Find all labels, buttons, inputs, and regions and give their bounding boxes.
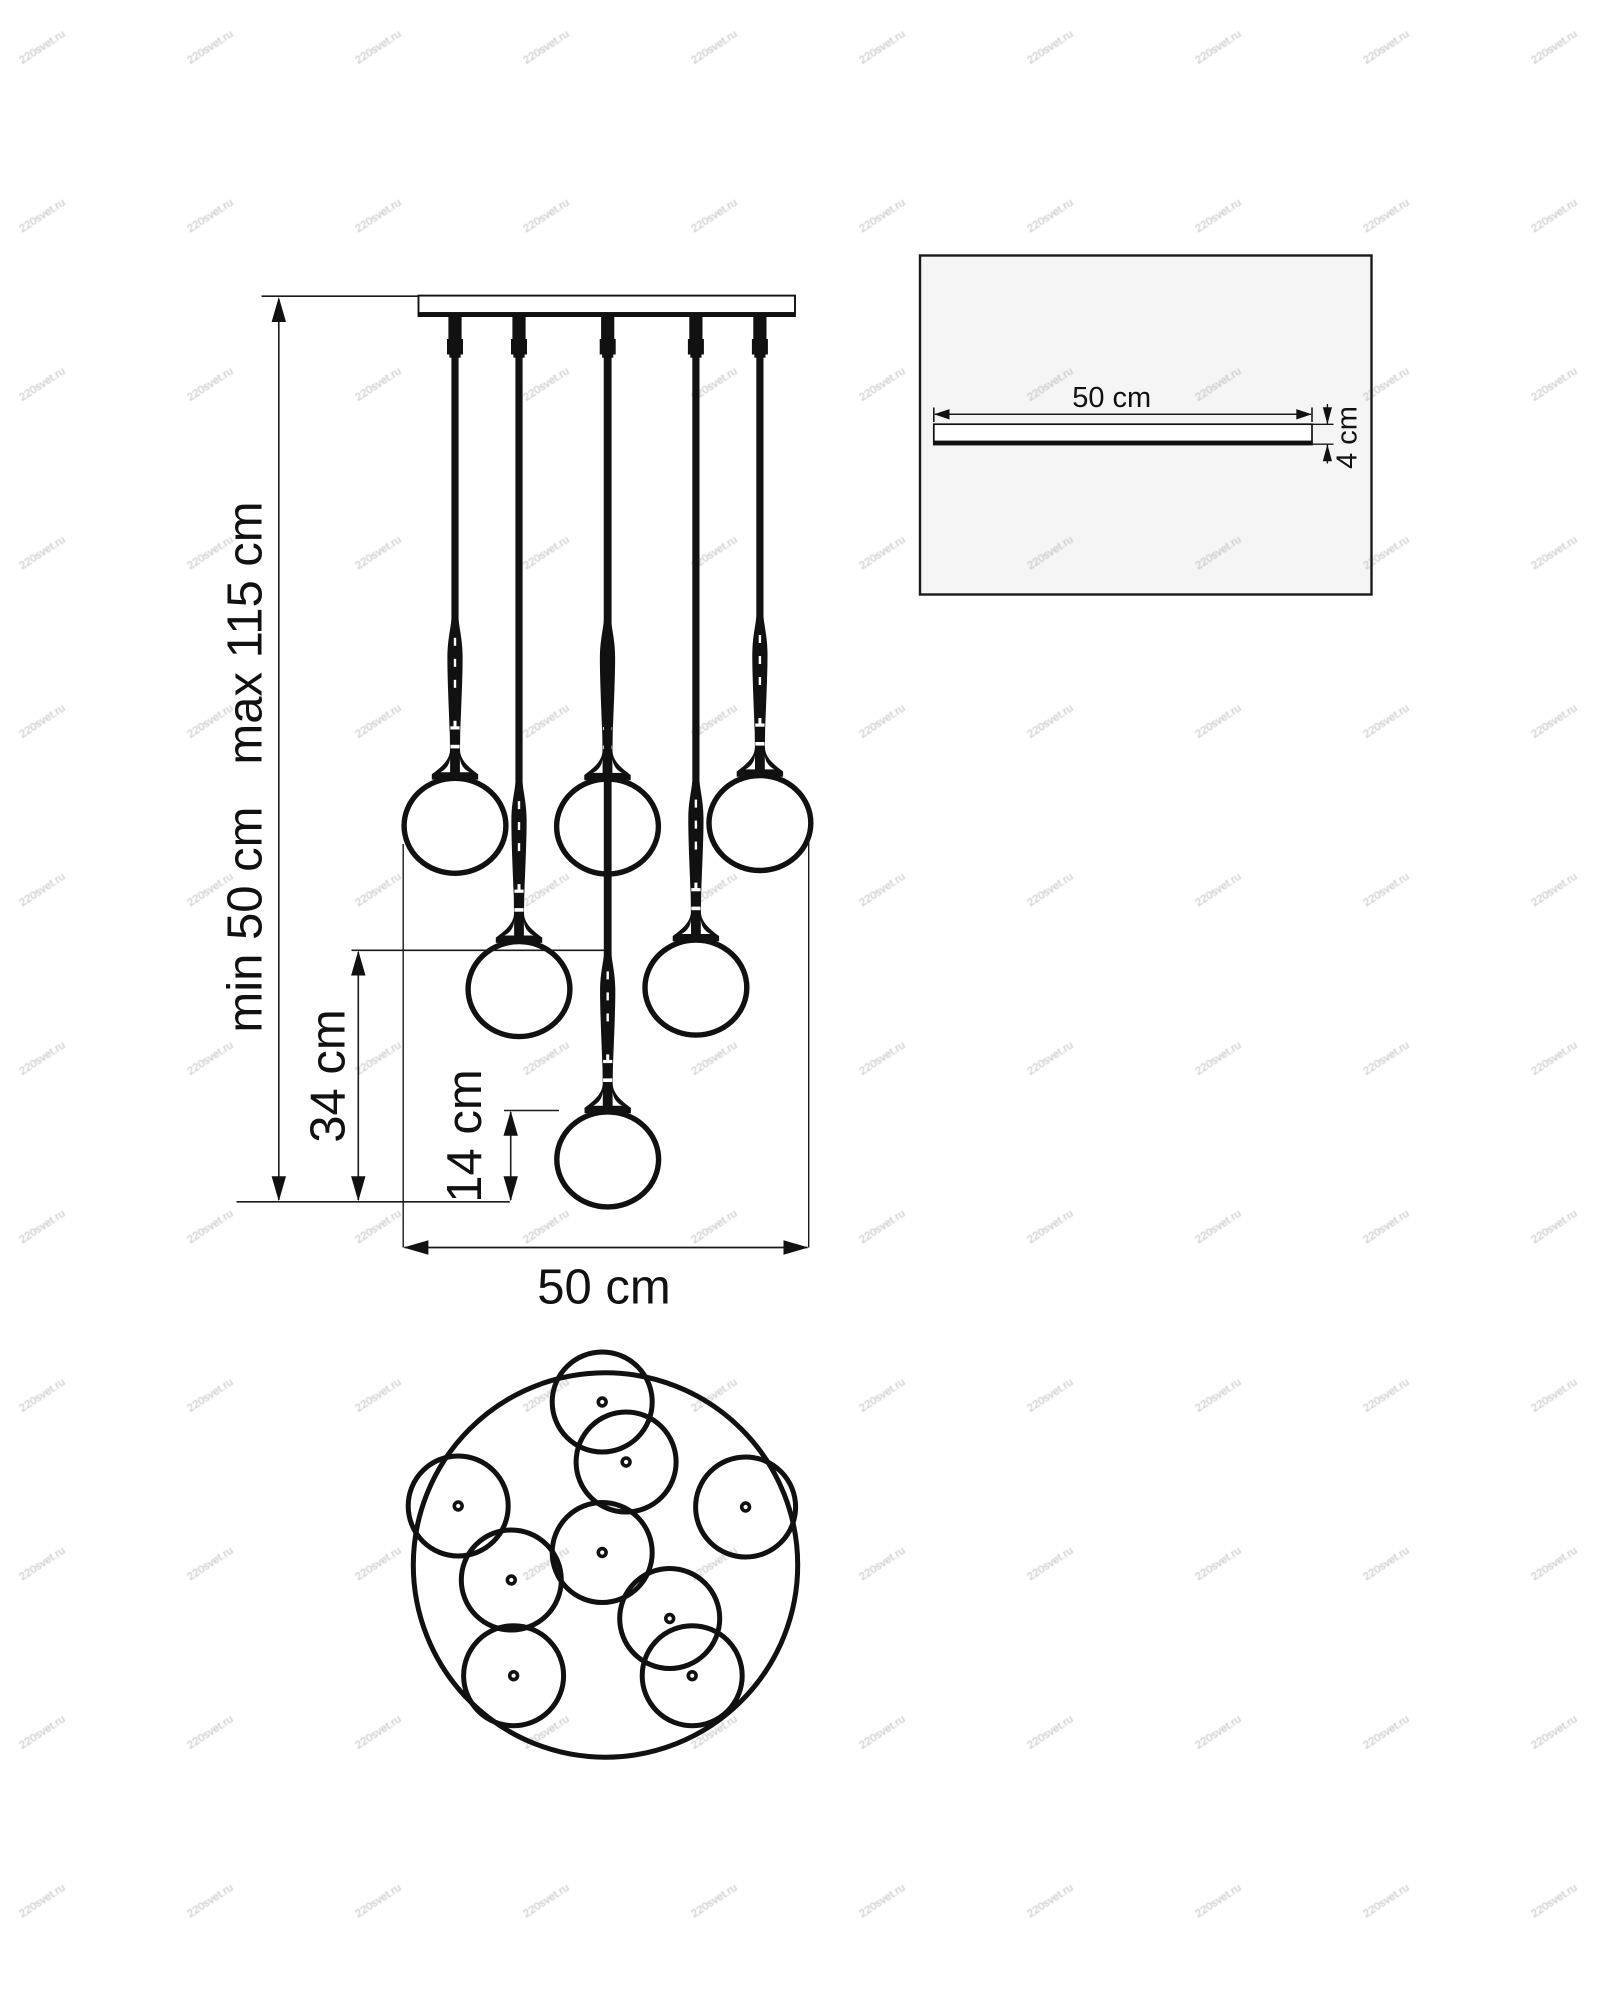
svg-text:34 cm: 34 cm xyxy=(302,1009,356,1142)
svg-text:14 cm: 14 cm xyxy=(438,1069,492,1202)
svg-text:50 cm: 50 cm xyxy=(1072,382,1151,414)
svg-text:min 50 cm: min 50 cm xyxy=(219,807,273,1033)
svg-text:4 cm: 4 cm xyxy=(1332,406,1364,469)
svg-text:50 cm: 50 cm xyxy=(537,1261,670,1315)
svg-text:max 115 cm: max 115 cm xyxy=(219,501,273,764)
